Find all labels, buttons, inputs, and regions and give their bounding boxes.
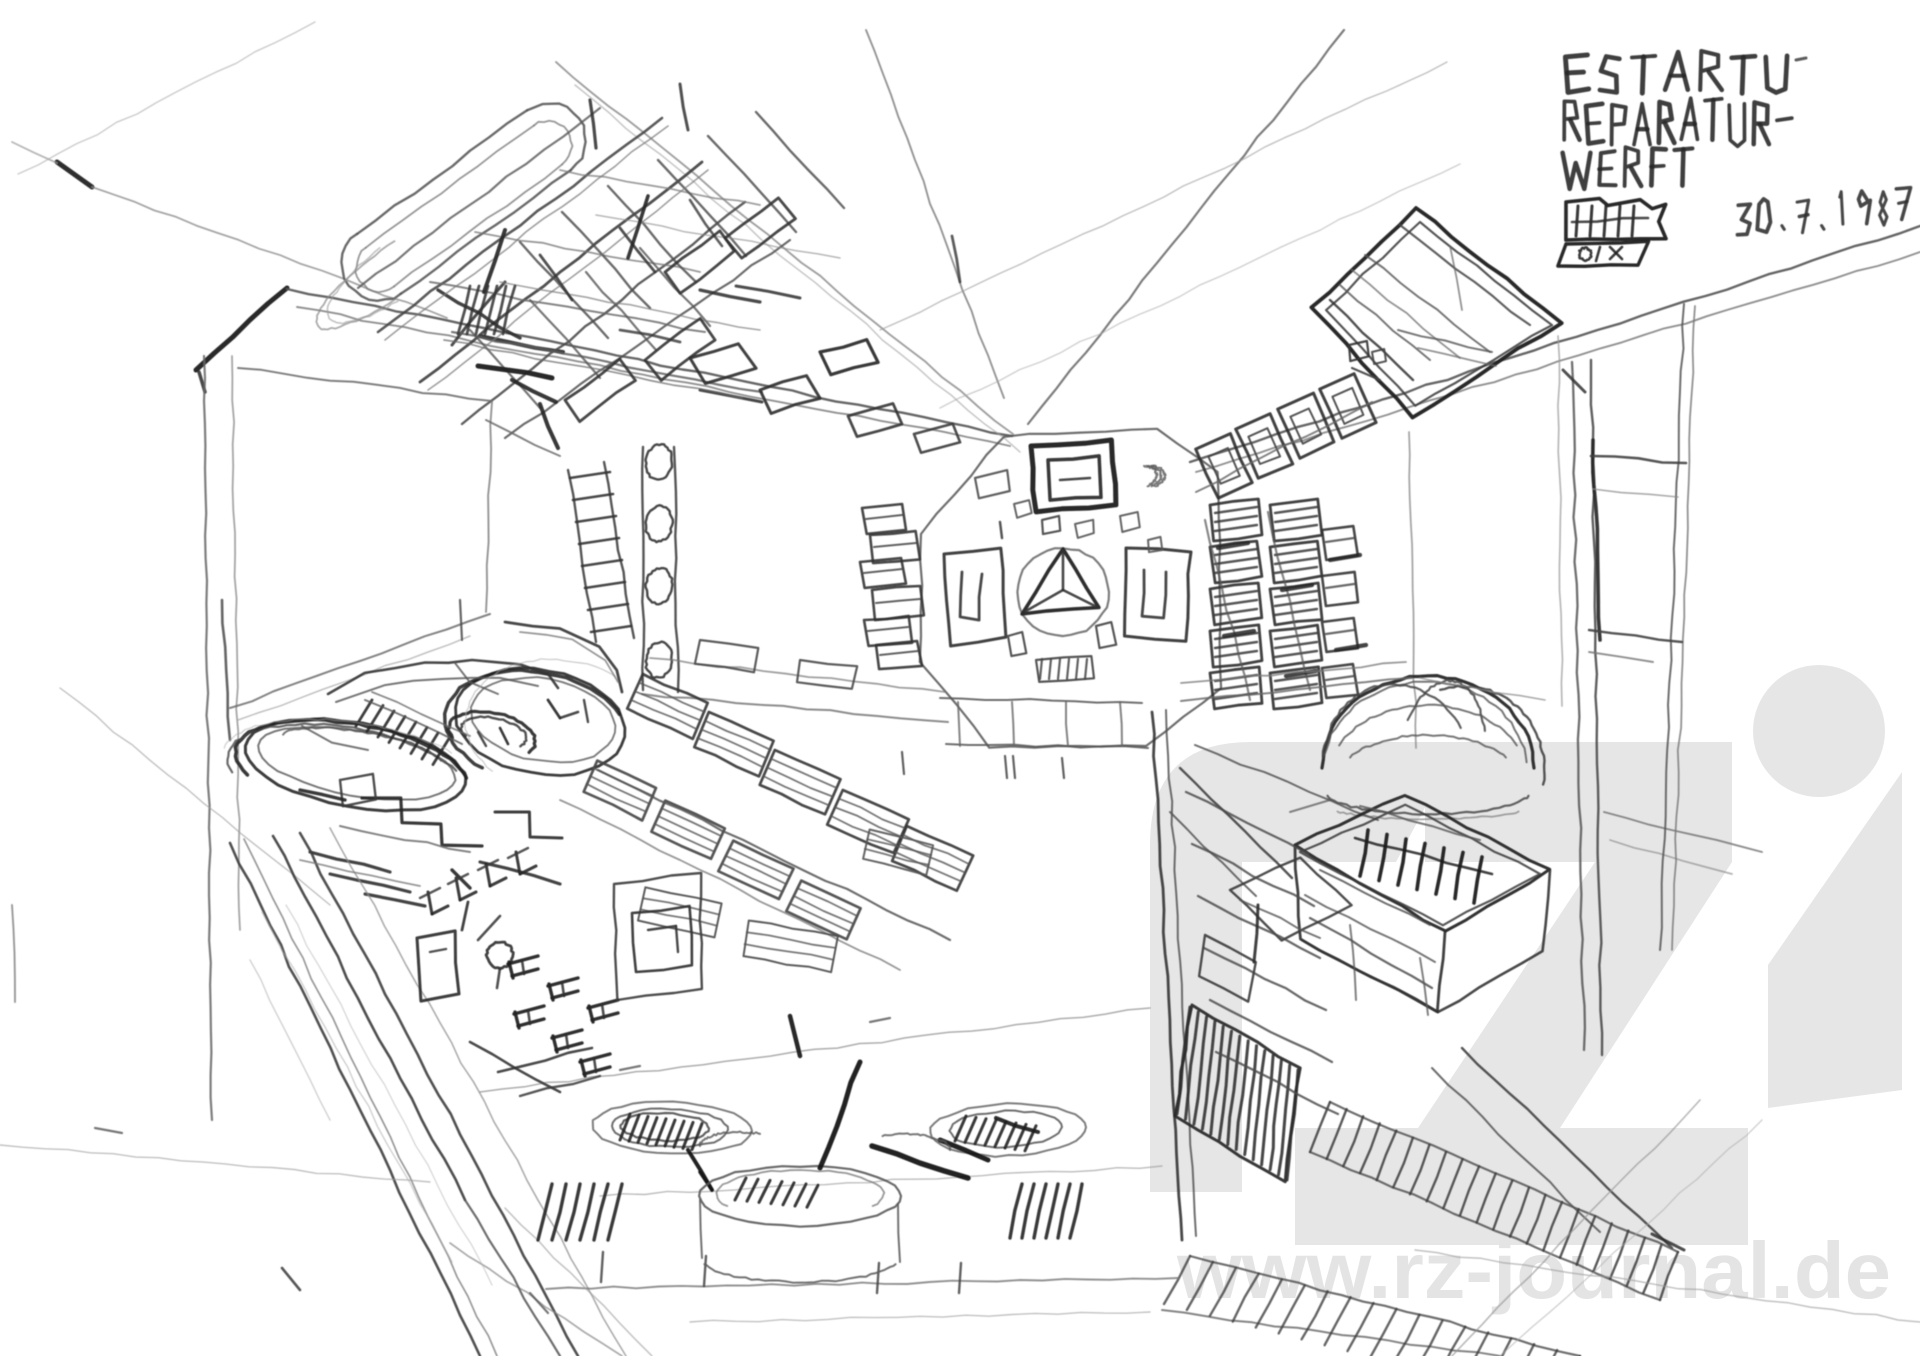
svg-text:www.rz-journal.de: www.rz-journal.de <box>1176 1226 1891 1315</box>
